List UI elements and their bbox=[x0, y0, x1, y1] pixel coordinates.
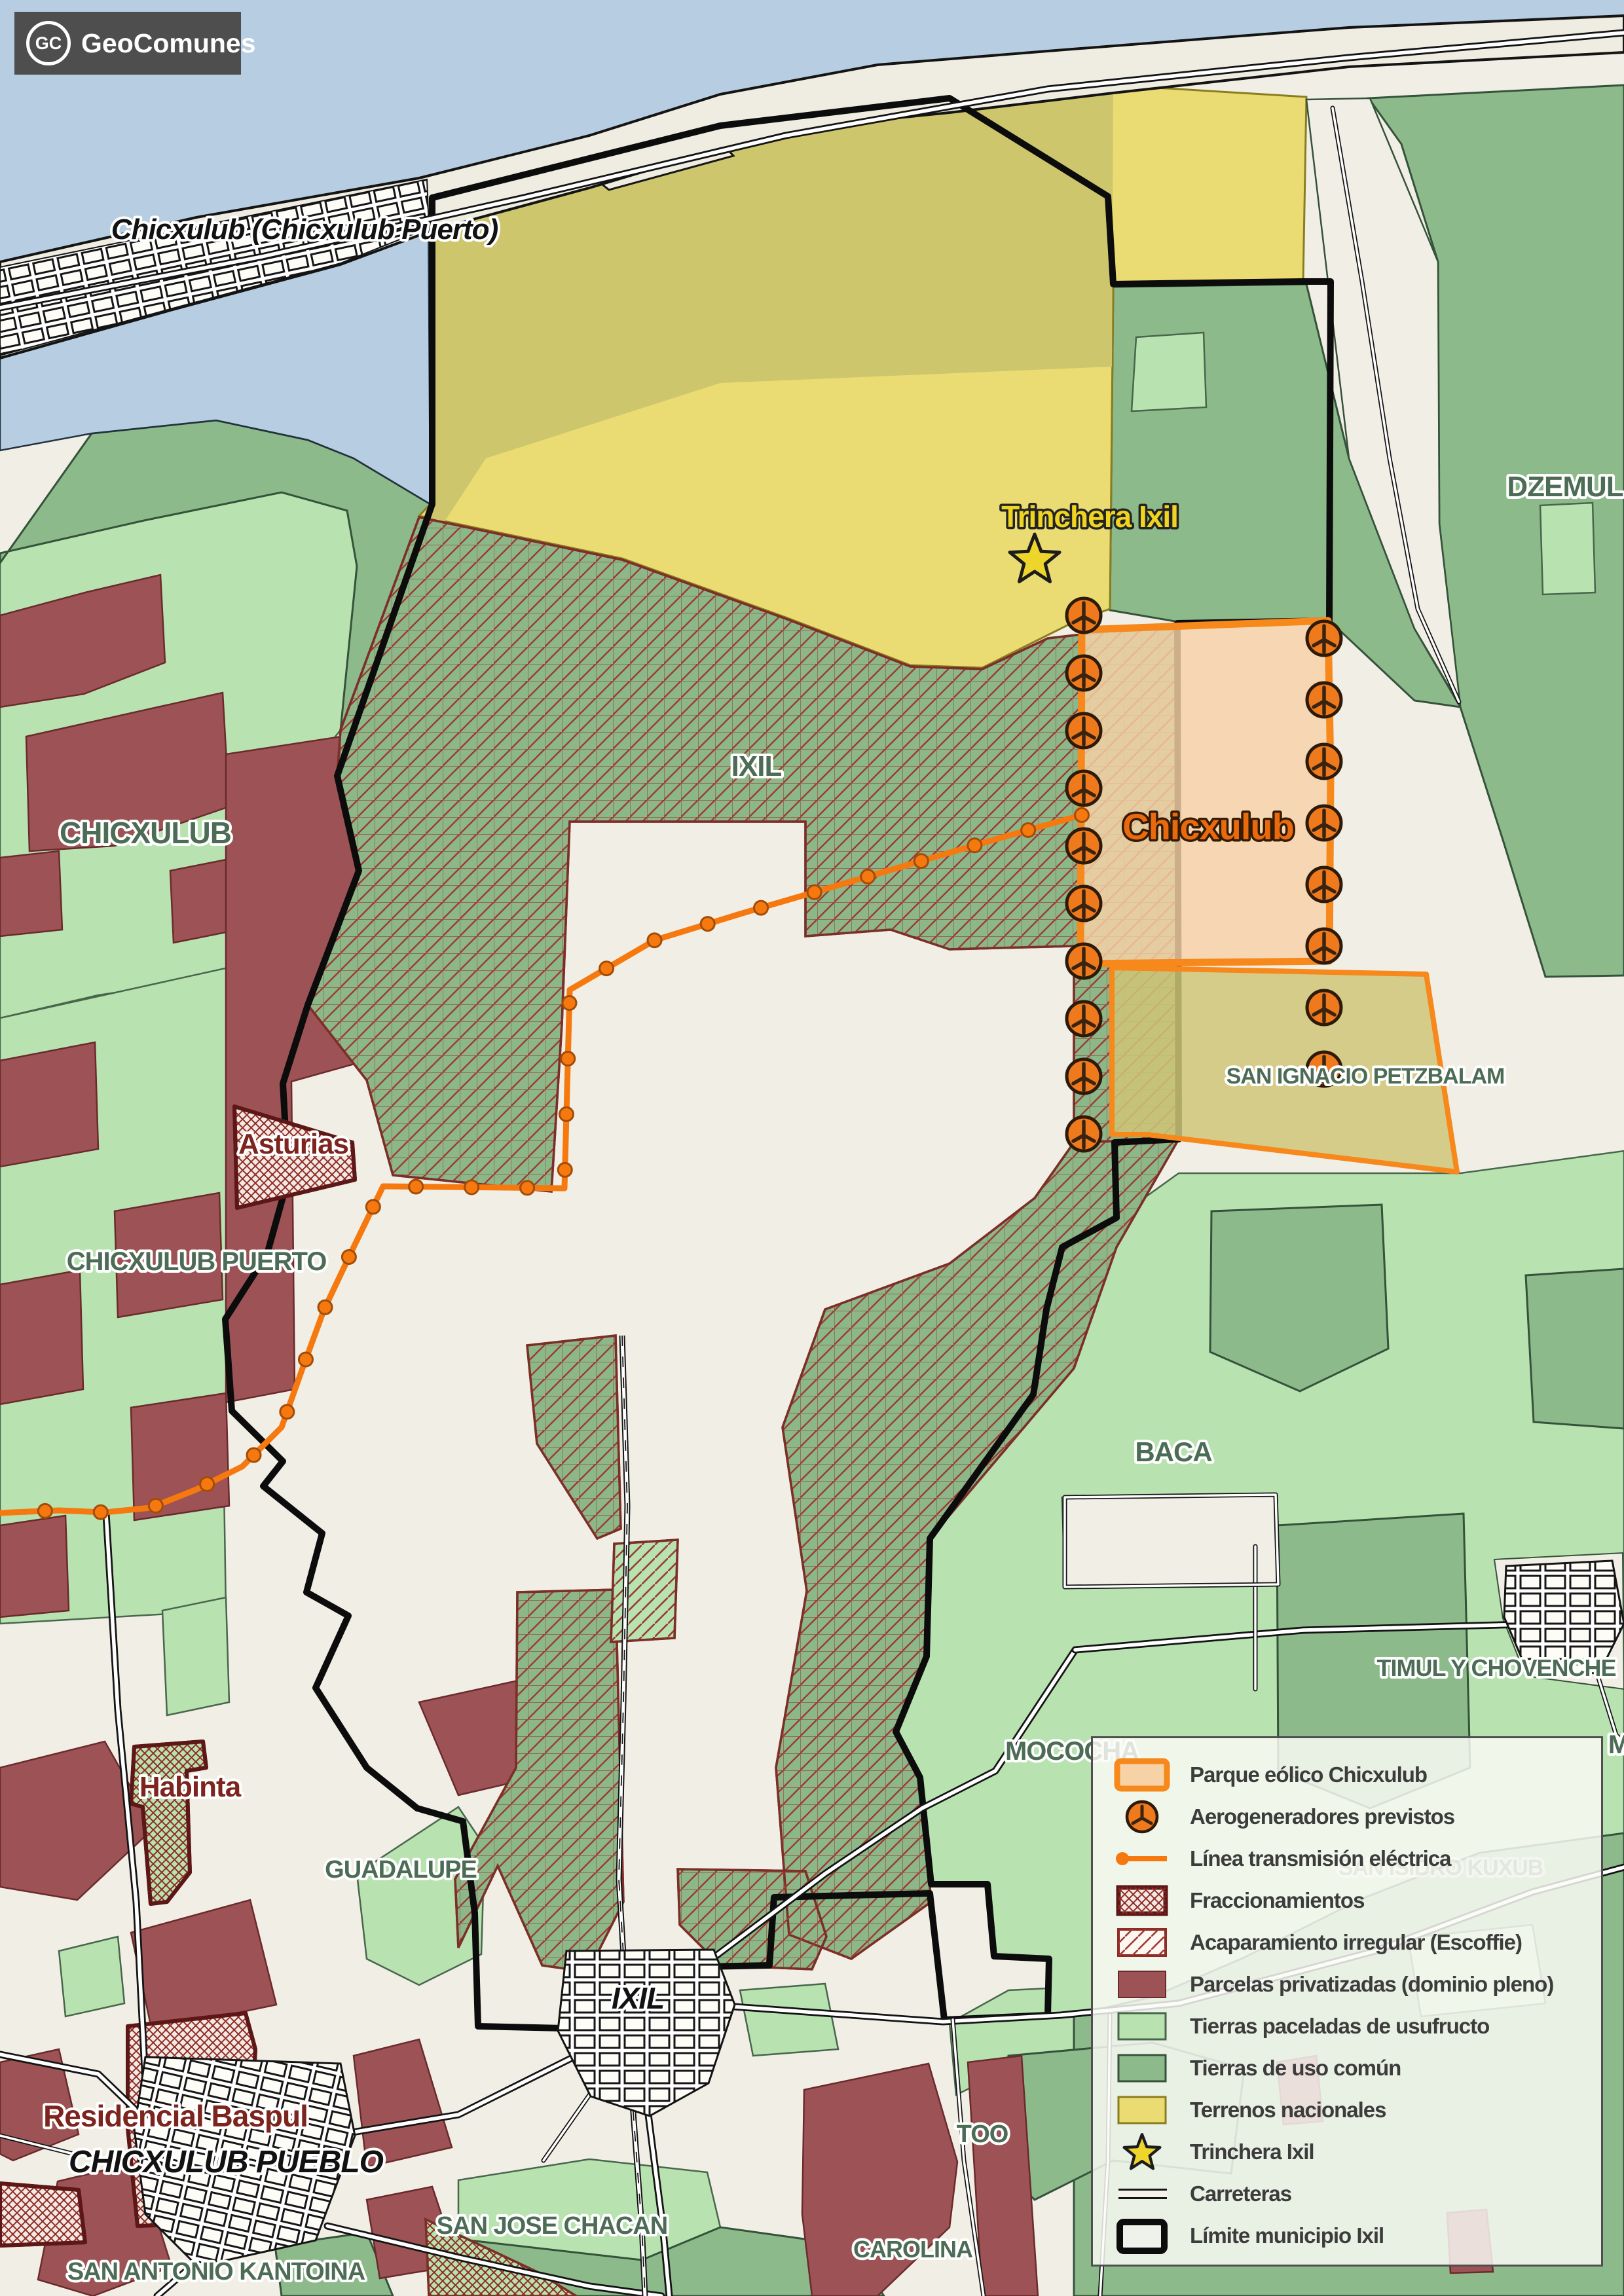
legend-swatch-lightgreen-icon bbox=[1103, 2007, 1181, 2045]
transmission-pylon-dot bbox=[465, 1180, 479, 1194]
legend-label: Tierras de uso común bbox=[1190, 2056, 1401, 2081]
transmission-pylon-dot bbox=[1022, 823, 1035, 837]
legend-item-turbine: Aerogeneradores previstos bbox=[1103, 1797, 1592, 1836]
wind-turbine-icon bbox=[1067, 714, 1101, 748]
transmission-pylon-dot bbox=[754, 901, 768, 915]
legend-swatch-turbine-icon bbox=[1103, 1798, 1181, 1836]
legend-item-boundary: Límite municipio Ixil bbox=[1103, 2216, 1592, 2255]
legend-label: Terrenos nacionales bbox=[1190, 2098, 1386, 2123]
map-label-ixil: IXIL bbox=[612, 1981, 664, 2015]
legend-swatch-yellow-icon bbox=[1103, 2091, 1181, 2129]
map-label-san-jose-chacan: SAN JOSE CHACAN bbox=[437, 2212, 667, 2240]
geocomunes-logo: GC GeoComunes bbox=[14, 12, 241, 75]
legend-label: Acaparamiento irregular (Escoffie) bbox=[1190, 1930, 1522, 1955]
transmission-pylon-dot bbox=[701, 917, 714, 931]
transmission-pylon-dot bbox=[318, 1300, 332, 1314]
wind-turbine-icon bbox=[1067, 886, 1101, 920]
map-label-dzemul: DZEMUL bbox=[1507, 471, 1623, 503]
transmission-pylon-dot bbox=[200, 1477, 214, 1491]
legend-item-maroon: Parcelas privatizadas (dominio pleno) bbox=[1103, 1965, 1592, 2004]
transmission-pylon-dot bbox=[521, 1181, 534, 1195]
park-polygon bbox=[1080, 621, 1331, 964]
map-label-chicxulub: CHICXULUB bbox=[60, 816, 231, 850]
transmission-pylon-dot bbox=[149, 1499, 162, 1512]
wind-turbine-icon bbox=[1307, 867, 1341, 902]
legend-swatch-star-icon bbox=[1103, 2133, 1181, 2171]
wind-turbine-icon bbox=[1067, 1002, 1101, 1036]
legend-swatch-crosshatch-icon bbox=[1103, 1882, 1181, 1920]
wind-turbine-icon bbox=[1307, 683, 1341, 717]
transmission-pylon-dot bbox=[94, 1505, 107, 1519]
map-label-trinchera-ixil: Trinchera Ixil bbox=[1001, 500, 1178, 534]
wind-turbine-icon bbox=[1067, 771, 1101, 805]
legend-label: Parcelas privatizadas (dominio pleno) bbox=[1190, 1972, 1553, 1997]
transmission-pylon-dot bbox=[38, 1504, 52, 1518]
wind-turbine-icon bbox=[1307, 806, 1341, 840]
wind-turbine-icon bbox=[1307, 929, 1341, 963]
legend-swatch-maroon-icon bbox=[1103, 1965, 1181, 2003]
transmission-pylon-dot bbox=[558, 1163, 572, 1176]
transmission-pylon-dot bbox=[561, 1051, 575, 1065]
wind-turbine-icon bbox=[1307, 744, 1341, 778]
legend-item-line: Línea transmisión eléctrica bbox=[1103, 1839, 1592, 1878]
transmission-pylon-dot bbox=[280, 1405, 294, 1419]
transmission-pylon-dot bbox=[807, 885, 821, 899]
transmission-pylon-dot bbox=[968, 839, 982, 852]
wind-turbine-icon bbox=[1067, 829, 1101, 863]
map-label-m: M bbox=[1608, 1730, 1624, 1759]
legend-label: Trinchera Ixil bbox=[1190, 2140, 1314, 2164]
legend-item-crosshatch: Fraccionamientos bbox=[1103, 1881, 1592, 1920]
legend-item-yellow: Terrenos nacionales bbox=[1103, 2090, 1592, 2130]
legend-swatch-park-icon bbox=[1103, 1756, 1181, 1794]
legend-label: Aerogeneradores previstos bbox=[1190, 1804, 1454, 1829]
legend-item-star: Trinchera Ixil bbox=[1103, 2132, 1592, 2172]
map-label-asturias: Asturias bbox=[238, 1128, 348, 1160]
transmission-pylon-dot bbox=[299, 1353, 312, 1366]
wind-turbine-icon bbox=[1067, 1059, 1101, 1093]
transmission-pylon-dot bbox=[600, 962, 614, 975]
transmission-pylon-dot bbox=[648, 934, 661, 947]
transmission-pylon-dot bbox=[247, 1448, 261, 1462]
map-label-ixil: IXIL bbox=[731, 750, 782, 782]
wind-turbine-icon bbox=[1307, 621, 1341, 655]
wind-turbine-icon bbox=[1067, 944, 1101, 978]
transmission-pylon-dot bbox=[1075, 809, 1089, 822]
map-label-habinta: Habinta bbox=[139, 1771, 242, 1803]
transmission-pylon-dot bbox=[914, 854, 928, 868]
legend-label: Parque eólico Chicxulub bbox=[1190, 1762, 1427, 1787]
legend-label: Tierras paceladas de usufructo bbox=[1190, 2014, 1489, 2039]
logo-name: GeoComunes bbox=[81, 28, 256, 59]
map-label-baca: BACA bbox=[1135, 1436, 1212, 1467]
map-label-chicxulub-pueblo: CHICXULUB PUEBLO bbox=[69, 2145, 384, 2179]
legend-item-road: Carreteras bbox=[1103, 2174, 1592, 2214]
map-label-carolina: CAROLINA bbox=[853, 2236, 973, 2263]
wind-turbine-icon bbox=[1067, 598, 1101, 632]
transmission-pylon-dot bbox=[409, 1180, 423, 1194]
legend-label: Límite municipio Ixil bbox=[1190, 2223, 1384, 2248]
map-label-too: TOO bbox=[957, 2121, 1008, 2148]
legend-swatch-boundary-icon bbox=[1103, 2217, 1181, 2255]
legend-swatch-mediumgreen-icon bbox=[1103, 2049, 1181, 2087]
map-legend: Parque eólico ChicxulubAerogeneradores p… bbox=[1091, 1736, 1603, 2267]
legend-swatch-road-icon bbox=[1103, 2175, 1181, 2213]
map-label-timul-y-chovenche: TIMUL Y CHOVENCHE bbox=[1376, 1654, 1615, 1681]
transmission-pylon-dot bbox=[342, 1250, 356, 1264]
map-label-guadalupe: GUADALUPE bbox=[325, 1856, 477, 1884]
legend-label: Línea transmisión eléctrica bbox=[1190, 1846, 1451, 1871]
map-label-san-antonio-kantoina: SAN ANTONIO KANTOINA bbox=[67, 2258, 365, 2286]
map-stage: Chicxulub (Chicxulub Puerto)CHICXULUBIXI… bbox=[0, 0, 1624, 2296]
wind-turbine-icon bbox=[1307, 991, 1341, 1025]
transmission-pylon-dot bbox=[559, 1107, 573, 1121]
wind-turbine-icon bbox=[1067, 656, 1101, 690]
transmission-pylon-dot bbox=[861, 869, 875, 883]
legend-item-diaghatch: Acaparamiento irregular (Escoffie) bbox=[1103, 1923, 1592, 1962]
transmission-pylon-dot bbox=[366, 1200, 380, 1214]
legend-item-mediumgreen: Tierras de uso común bbox=[1103, 2049, 1592, 2088]
wind-turbine-icon bbox=[1067, 1117, 1101, 1151]
logo-gc-icon: GC bbox=[26, 21, 71, 65]
map-label-san-ignacio-petzbalam: SAN IGNACIO PETZBALAM bbox=[1227, 1064, 1505, 1089]
transmission-pylon-dot bbox=[563, 996, 576, 1010]
legend-label: Carreteras bbox=[1190, 2181, 1291, 2206]
legend-item-park: Parque eólico Chicxulub bbox=[1103, 1755, 1592, 1795]
legend-swatch-line-icon bbox=[1103, 1840, 1181, 1878]
map-label-chicxulub-puerto: CHICXULUB PUERTO bbox=[67, 1247, 327, 1276]
legend-label: Fraccionamientos bbox=[1190, 1888, 1364, 1913]
map-label-residencial-baspul: Residencial Baspul bbox=[43, 2099, 308, 2133]
map-label-chicxulub: Chicxulub bbox=[1122, 806, 1294, 847]
legend-item-lightgreen: Tierras paceladas de usufructo bbox=[1103, 2007, 1592, 2046]
legend-swatch-diaghatch-icon bbox=[1103, 1923, 1181, 1961]
map-label-chicxulub-chicxulub-puerto-: Chicxulub (Chicxulub Puerto) bbox=[111, 213, 498, 246]
